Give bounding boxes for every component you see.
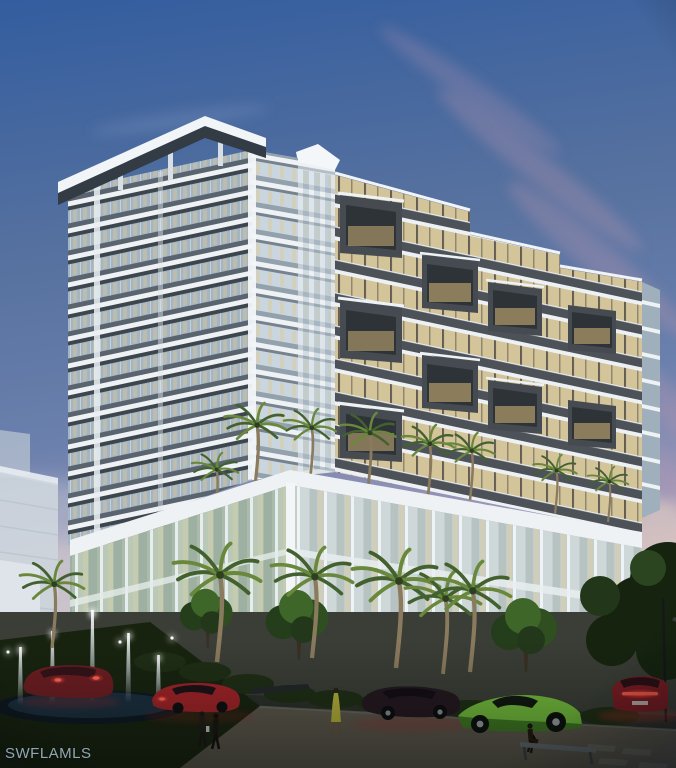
vignette	[0, 0, 676, 768]
listing-photo-condo-rendering: SWFLAMLS	[0, 0, 676, 768]
mls-watermark: SWFLAMLS	[5, 745, 92, 762]
scene-rendering	[0, 0, 676, 768]
